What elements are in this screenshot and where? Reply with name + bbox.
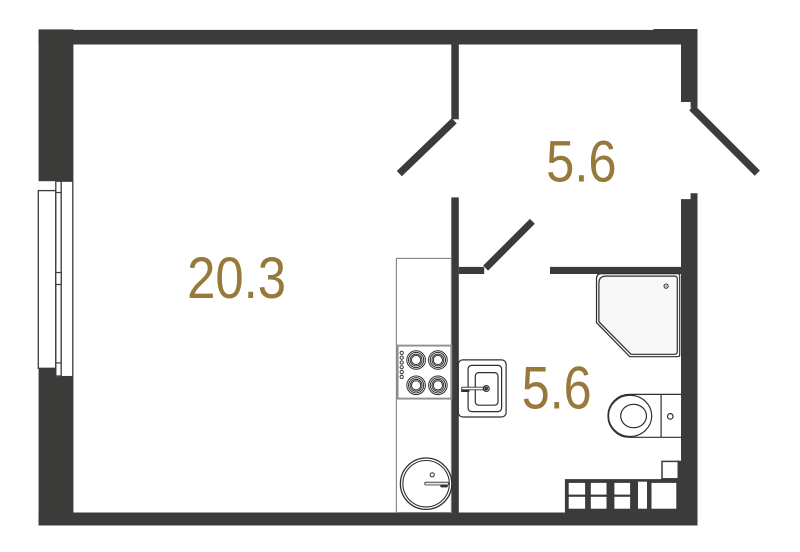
svg-text:5.6: 5.6 [546,129,617,194]
svg-text:5.6: 5.6 [522,355,592,422]
svg-text:20.3: 20.3 [187,246,286,311]
